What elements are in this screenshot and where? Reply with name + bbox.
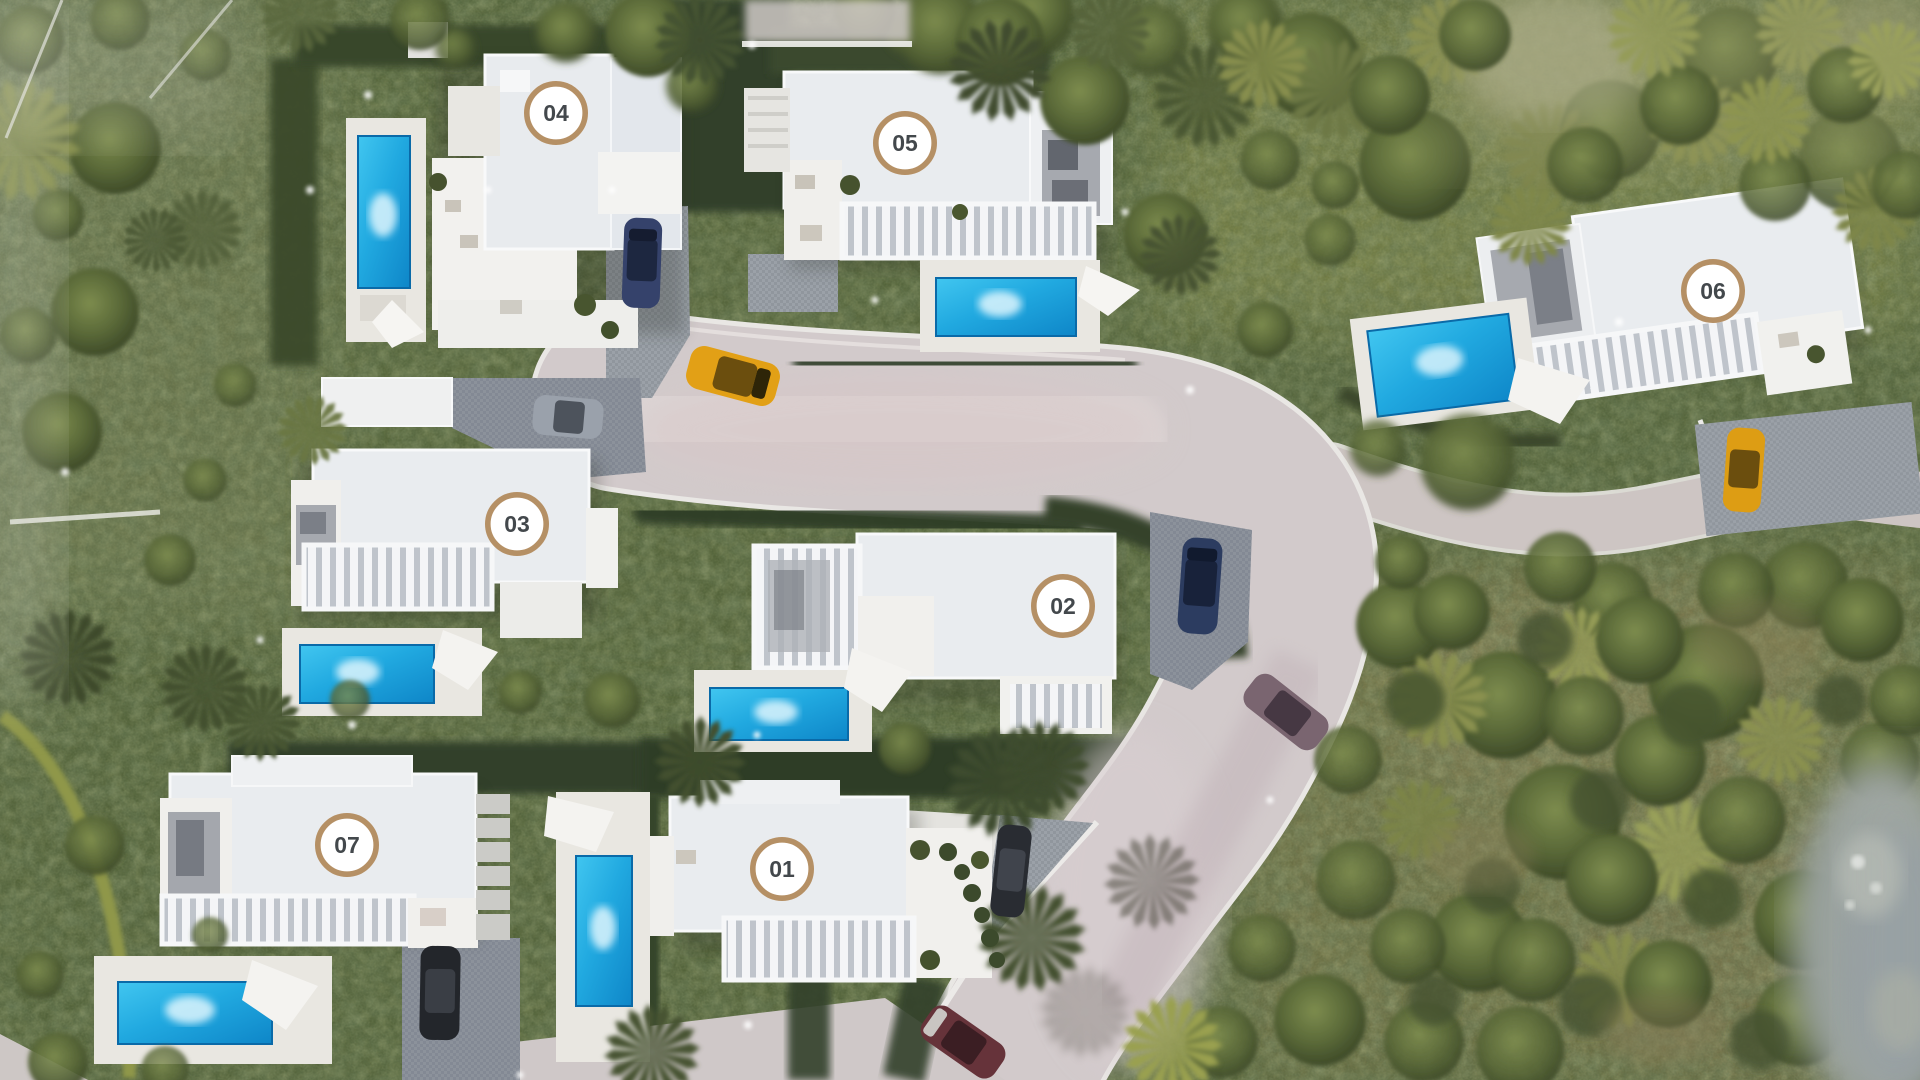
svg-text:03: 03 bbox=[504, 511, 530, 537]
svg-text:01: 01 bbox=[769, 856, 795, 882]
svg-text:04: 04 bbox=[543, 100, 569, 126]
svg-text:05: 05 bbox=[892, 130, 918, 156]
svg-text:02: 02 bbox=[1050, 593, 1076, 619]
svg-text:06: 06 bbox=[1700, 278, 1726, 304]
svg-text:07: 07 bbox=[334, 832, 360, 858]
